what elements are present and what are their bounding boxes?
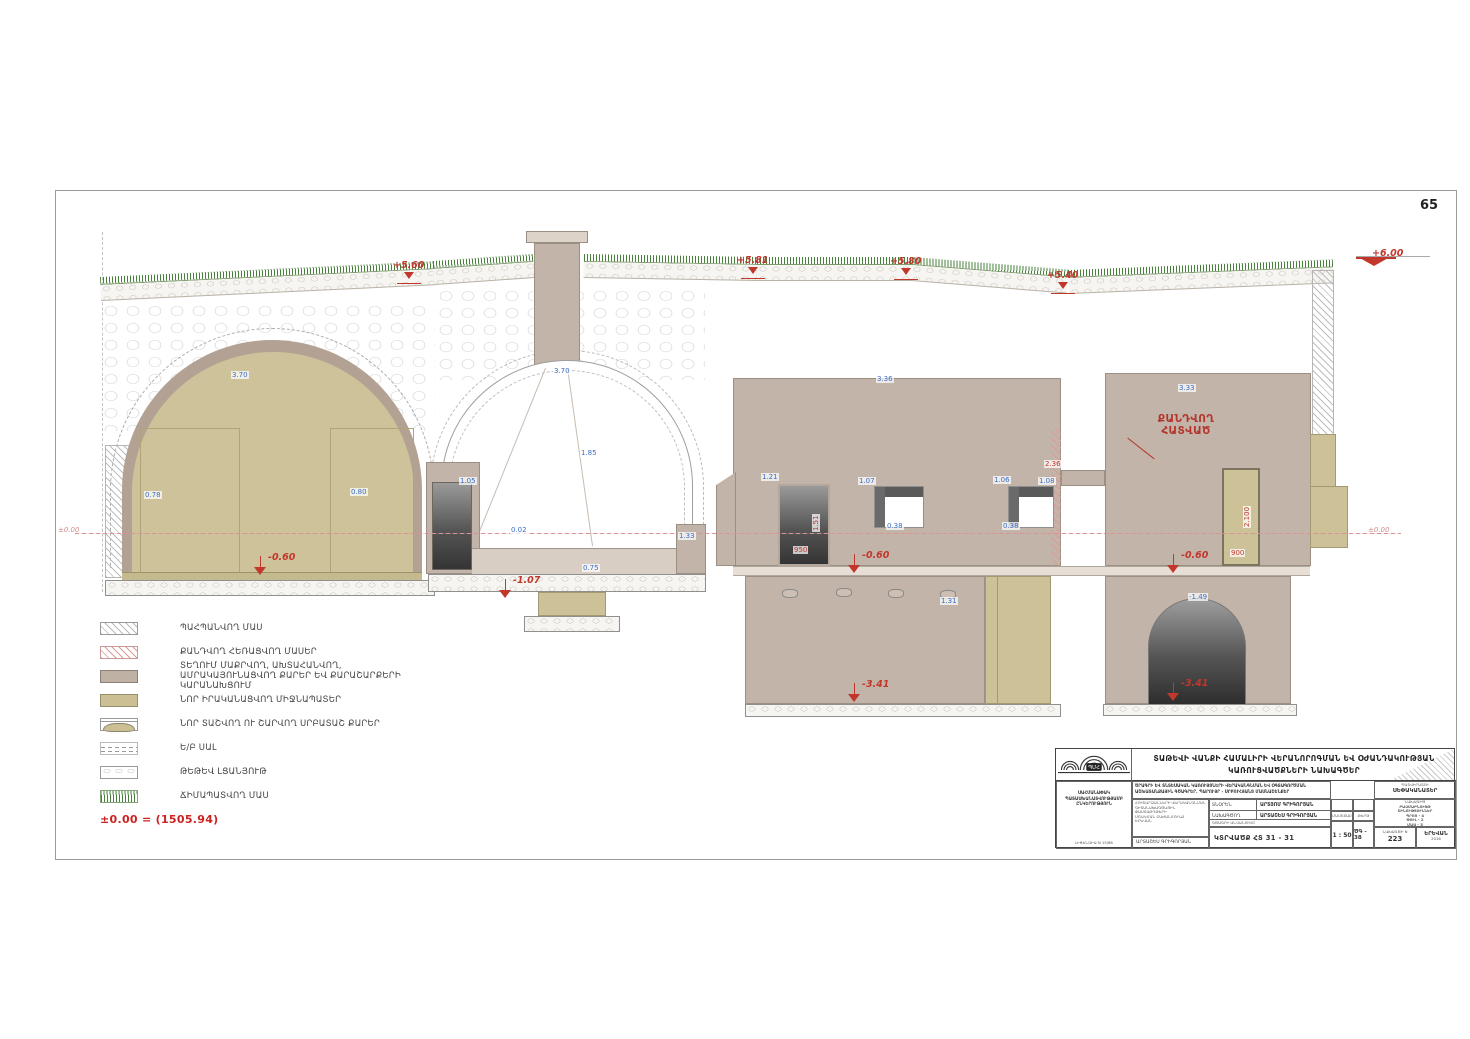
dimension-label: 0.75 bbox=[582, 564, 600, 572]
elevation-marker: +6.00 bbox=[1372, 241, 1403, 260]
signature-role: ՆԱԽԱԳԾՈՂ bbox=[1210, 811, 1257, 819]
department-lines: ՀՈՒՇԱՐՁԱՆՆԵՐԻ ՎԵՐԱԿԱՆԳՆՄԱՆԳԻՏԱՆԱԽԱԳԾԱՅԻՆ… bbox=[1135, 801, 1206, 824]
elevation-marker: +5.80 bbox=[890, 249, 921, 280]
title-block: ՊՄՀ ՏԱԹԵՎԻ ՎԱՆՔԻ ՀԱՄԱԼԻՐԻ ՎԵՐԱՆՈՐՈԳՄԱՆ Ե… bbox=[1055, 748, 1455, 848]
roof-band-segment bbox=[433, 254, 534, 285]
elevation-value: -3.41 bbox=[1181, 678, 1208, 689]
dimension-label: 0.02 bbox=[510, 526, 528, 534]
legend: ՊԱՀՊԱՆՎՈՂ ՄԱՍՔԱՆԴՎՈՂ ՀԵՌԱՑՎՈՂ ՄԱՍԵՐՏԵՂՈՒ… bbox=[100, 616, 430, 808]
legend-row: Ե/Բ ՍԱԼ bbox=[100, 736, 430, 760]
project-cell: ՆԱԽԱԳԻԾ ԲԱԶՄԱԲՆՈՒՅԹՇԻՆՈՒԹՅՈՒՆՆԵՐՊՐՈՅ - 4… bbox=[1374, 799, 1456, 827]
middle-foundation bbox=[428, 574, 706, 592]
level-symbol bbox=[738, 267, 768, 279]
signature-role: ՏՆՕՐԵՆ bbox=[1210, 800, 1257, 810]
elevation-value: +5.60 bbox=[393, 260, 424, 271]
scale-spacer bbox=[1331, 799, 1353, 811]
window-shadow-side bbox=[1009, 487, 1019, 527]
elevation-marker: -3.41 bbox=[862, 672, 889, 691]
scale-value-cell: 1 : 50 bbox=[1331, 821, 1353, 849]
stone-layer bbox=[584, 262, 758, 281]
dimension-label: 1.85 bbox=[580, 449, 598, 457]
level-arrow-head bbox=[1167, 693, 1179, 707]
dimension-label: 3.33 bbox=[1178, 384, 1196, 392]
sheet-label: ԹԵՐԹ bbox=[1358, 814, 1370, 819]
embedded-stone bbox=[836, 588, 852, 597]
sheet-spacer bbox=[1353, 799, 1374, 811]
organization-logo: ՊՄՀ bbox=[1058, 751, 1130, 777]
level-symbol bbox=[394, 272, 424, 284]
text-line: ԵՐԵՎԱՆ bbox=[1135, 819, 1206, 824]
right-foundation-right bbox=[1103, 704, 1297, 716]
roof-band-segment bbox=[100, 261, 435, 301]
right-foundation-left bbox=[745, 704, 1061, 717]
datum-line bbox=[75, 533, 1401, 534]
legend-row: ՆՈՐ ԻՐԱԿԱՆԱՑՎՈՂ ՄԻՋՆԱՊԱՏԵՐ bbox=[100, 688, 430, 712]
scale-value: 1 : 50 bbox=[1332, 832, 1351, 839]
dimension-label: 1.08 bbox=[1038, 477, 1056, 485]
scale-label-cell: ՄԱՍՇՏԱԲ bbox=[1331, 811, 1353, 821]
embedded-stone bbox=[782, 589, 798, 598]
elevation-marker: -0.60 bbox=[862, 543, 889, 562]
signature-row: ՆԱԽԱԳԾՈՂԱՐՏԱՇԵՍ ԳՐԻԳՈՐՅԱՆ bbox=[1210, 811, 1330, 819]
elevation-value: -0.60 bbox=[1181, 550, 1208, 561]
elevation-marker: +5.40 bbox=[1047, 263, 1078, 294]
chimney-cap bbox=[526, 231, 588, 243]
level-arrow-head bbox=[1167, 565, 1179, 579]
datum-underline bbox=[1356, 257, 1396, 259]
demolition-note: ՔԱՆԴՎՈՂ ՀԱՏՎԱԾ bbox=[1146, 413, 1226, 437]
level-symbol bbox=[891, 268, 921, 280]
dimension-label: 2.100 bbox=[1243, 506, 1251, 528]
author-cell: ԱՐՏԱՇԵՍ ԳՐԻԳՈՐՅԱՆ bbox=[1132, 837, 1209, 849]
legend-row: ՆՈՐ ՏԱՇՎՈՂ ՈՒ ՇԱՐՎՈՂ ՍՐԲԱՏԱՇ ՔԱՐԵՐ bbox=[100, 712, 430, 736]
level-symbol bbox=[1048, 282, 1078, 294]
scale-label: ՄԱՍՇՏԱԲ bbox=[1332, 814, 1352, 819]
license-number: ԼԻՑԵՆԶԻԱ N 15/68 bbox=[1057, 841, 1131, 846]
signature-rows: ՏՆՕՐԵՆԱՐՏՅՈՄ ԳՐԻԳՈՐՅԱՆՆԱԽԱԳԾՈՂԱՐՏԱՇԵՍ ԳՐ… bbox=[1209, 799, 1331, 819]
dimension-label: 1.31 bbox=[940, 597, 958, 605]
roof-band-segment bbox=[910, 257, 1068, 294]
elevation-value: -1.07 bbox=[513, 575, 540, 586]
new-partition-lower bbox=[985, 576, 1051, 704]
project-description-line1: ԾՐԱԳՐԻ ԵՎ ՏՆՏԵՍԱԿԱՆ ԿԱՌՈՒՅՑՆԵՐԻ ՎԵՐԱԿԱՆԳ… bbox=[1135, 783, 1328, 789]
signature-row: ՏՆՕՐԵՆԱՐՏՅՈՄ ԳՐԻԳՈՐՅԱՆ bbox=[1210, 800, 1330, 811]
dimension-label: 2.36 bbox=[1044, 460, 1062, 468]
dimension-label: 900 bbox=[1230, 549, 1245, 557]
partition-inner-line bbox=[997, 577, 998, 703]
datum-label-right: ±0.00 bbox=[1368, 526, 1389, 534]
signature-name: ԱՐՏԱՇԵՍ ԳՐԻԳՈՐՅԱՆ bbox=[1257, 811, 1330, 819]
dimension-label: 3.70 bbox=[231, 371, 249, 379]
middle-foundation-step bbox=[538, 592, 606, 616]
elevation-value: +5.80 bbox=[890, 256, 921, 267]
dimension-label: 950 bbox=[793, 546, 808, 554]
author-name: ԱՐՏԱՇԵՍ ԳՐԻԳՈՐՅԱՆ bbox=[1136, 840, 1191, 846]
left-vault-door-right bbox=[330, 428, 414, 574]
datum-label-left: ±0.00 bbox=[58, 526, 79, 534]
legend-row: ՊԱՀՊԱՆՎՈՂ ՄԱՍ bbox=[100, 616, 430, 640]
project-number: 223 bbox=[1375, 835, 1415, 843]
legend-label: ՆՈՐ ՏԱՇՎՈՂ ՈՒ ՇԱՐՎՈՂ ՍՐԲԱՏԱՇ ՔԱՐԵՐ bbox=[180, 719, 380, 729]
right-upper-wall-right bbox=[1105, 373, 1311, 566]
drawing-name-label-cell: ԳԾԱԳՐԻ ԱՆՎԱՆՈՒՄԸ bbox=[1209, 819, 1331, 827]
project-number-cell: ՆԱԽԱԳԾԻ N 223 bbox=[1374, 827, 1416, 849]
legend-row: ՏԵՂՈՒՄ ՄԱՔՐՎՈՂ, ԱԽՏԱՀԱՆՎՈՂ, ԱՄՐԱԿԱՅՈՒՆԱՑ… bbox=[100, 664, 430, 688]
elevation-marker: +5.60 bbox=[393, 253, 424, 284]
elevation-value: +5.40 bbox=[1047, 270, 1078, 281]
embedded-stone bbox=[888, 589, 904, 598]
svg-text:ՊՄՀ: ՊՄՀ bbox=[1088, 765, 1100, 771]
level-bar bbox=[741, 278, 765, 279]
floor-slab-right bbox=[733, 566, 1310, 576]
dimension-label: 1.07 bbox=[858, 477, 876, 485]
organization-name: ՍԱՀՄԱՆԱՓԱԿՊԱՏԱՍԽԱՆԱՏՎՈՒԹՅԱՄԲԸՆԿԵՐՈՒԹՅՈՒՆ bbox=[1057, 790, 1131, 807]
level-bar bbox=[1051, 293, 1075, 294]
demolition-note-line2: ՀԱՏՎԱԾ bbox=[1146, 425, 1226, 437]
window-shadow-side bbox=[875, 487, 885, 527]
legend-label: ՆՈՐ ԻՐԱԿԱՆԱՑՎՈՂ ՄԻՋՆԱՊԱՏԵՐ bbox=[180, 695, 341, 705]
legend-label: ԹԵԹԵՎ ԼՑԱՆՅՈՒԹ bbox=[180, 767, 267, 777]
text-line: ԸՆԿԵՐՈՒԹՅՈՒՆ bbox=[1057, 801, 1131, 807]
signature-name: ԱՐՏՅՈՄ ԳՐԻԳՈՐՅԱՆ bbox=[1257, 800, 1330, 810]
legend-label: ՊԱՀՊԱՆՎՈՂ ՄԱՍ bbox=[180, 623, 263, 633]
sheet-value: ԾԳ - 38 bbox=[1354, 829, 1373, 841]
left-vault-door-left bbox=[140, 428, 240, 574]
khaki-step-upper bbox=[1310, 434, 1336, 488]
project-lines: ԲԱԶՄԱԲՆՈՒՅԹՇԻՆՈՒԹՅՈՒՆՆԵՐՊՐՈՅ - 4ՓՈՒԼ - 2… bbox=[1375, 805, 1455, 827]
legend-swatch-solid-taupe bbox=[100, 670, 138, 683]
level-arrow-head bbox=[499, 590, 511, 604]
khaki-step-lower bbox=[1310, 486, 1348, 548]
legend-swatch-hatch-gray bbox=[100, 622, 138, 635]
legend-label: Ե/Բ ՍԱԼ bbox=[180, 743, 217, 753]
title-block-header: ՏԱԹԵՎԻ ՎԱՆՔԻ ՀԱՄԱԼԻՐԻ ՎԵՐԱՆՈՐՈԳՄԱՆ ԵՎ ՕԺ… bbox=[1132, 749, 1456, 781]
middle-doorway bbox=[432, 482, 472, 570]
level-bar bbox=[397, 283, 421, 284]
level-arrow-head bbox=[848, 565, 860, 579]
dimension-label: 0.38 bbox=[886, 522, 904, 530]
elevation-marker: -0.60 bbox=[268, 545, 295, 564]
dimension-label: 1.51 bbox=[812, 514, 820, 532]
drawing-name: ԿՏՐՎԱԾՔ ՀՏ 31 - 31 bbox=[1214, 834, 1294, 842]
elevation-marker: -3.41 bbox=[1181, 671, 1208, 690]
legend-swatch-stone bbox=[100, 718, 138, 731]
datum-base-note: ±0.00 = (1505.94) bbox=[100, 813, 219, 826]
wall-connector-beam bbox=[1061, 470, 1105, 486]
middle-foundation-footing bbox=[524, 616, 620, 632]
dimension-label: 3.70 bbox=[553, 367, 571, 375]
owner-value: ՍԵՓԱԿԱՆԱՏԵՐ bbox=[1375, 788, 1455, 794]
drawing-name-cell: ԿՏՐՎԱԾՔ ՀՏ 31 - 31 bbox=[1209, 827, 1331, 849]
owner-cell: ՊԱՏՎԻՐԱՏՈՒ ՍԵՓԱԿԱՆԱՏԵՐ bbox=[1374, 781, 1456, 799]
elevation-value: +5.81 bbox=[737, 255, 768, 266]
left-vault-foundation bbox=[105, 580, 435, 596]
logo-cell: ՊՄՀ bbox=[1056, 749, 1132, 781]
dimension-label: 1.05 bbox=[459, 477, 477, 485]
dimension-label: 0.80 bbox=[350, 488, 368, 496]
legend-swatch-hatch-red bbox=[100, 646, 138, 659]
elevation-marker: -0.60 bbox=[1181, 543, 1208, 562]
middle-floor-slab bbox=[472, 548, 676, 574]
right-wall-step bbox=[716, 472, 736, 566]
legend-label: ՏԵՂՈՒՄ ՄԱՔՐՎՈՂ, ԱԽՏԱՀԱՆՎՈՂ, ԱՄՐԱԿԱՅՈՒՆԱՑ… bbox=[180, 661, 430, 692]
project-description-line2: ԱՇԽԱՏԱՆՔԱՅԻՆ ԳԾԱԳՐԵՐ. ՊԱՐՈՒՅՐ - ՍՐԲՈՒՀՅԱ… bbox=[1135, 789, 1328, 795]
department-cell: ՀՈՒՇԱՐՁԱՆՆԵՐԻ ՎԵՐԱԿԱՆԳՆՄԱՆԳԻՏԱՆԱԽԱԳԾԱՅԻՆ… bbox=[1132, 799, 1209, 837]
drawing-name-label: ԳԾԱԳՐԻ ԱՆՎԱՆՈՒՄԸ bbox=[1212, 821, 1255, 826]
legend-label: ՃԻՄԱՊԱՏՎՈՂ ՄԱՍ bbox=[180, 791, 269, 801]
sheet-value-cell: ԾԳ - 38 bbox=[1353, 821, 1374, 849]
level-arrow-head bbox=[254, 567, 266, 581]
dimension-label: 3.36 bbox=[876, 375, 894, 383]
legend-label: ՔԱՆԴՎՈՂ ՀԵՌԱՑՎՈՂ ՄԱՍԵՐ bbox=[180, 647, 317, 657]
dimension-label: -1.49 bbox=[1188, 593, 1208, 601]
year: 2016 bbox=[1417, 837, 1455, 842]
dimension-label: 0.78 bbox=[144, 491, 162, 499]
section-drawing: ±0.00 ±0.00 ՔԱՆԴՎՈՂ ՀԱՏՎԱԾ +5.60+5.81+5.… bbox=[0, 0, 1470, 1039]
legend-swatch-grass bbox=[100, 790, 138, 803]
elevation-marker: +5.81 bbox=[737, 248, 768, 279]
demolition-note-line1: ՔԱՆԴՎՈՂ bbox=[1146, 413, 1226, 425]
organization-cell: ՍԱՀՄԱՆԱՓԱԿՊԱՏԱՍԽԱՆԱՏՎՈՒԹՅԱՄԲԸՆԿԵՐՈՒԹՅՈՒՆ… bbox=[1056, 781, 1132, 849]
project-description-cell: ԾՐԱԳՐԻ ԵՎ ՏՆՏԵՍԱԿԱՆ ԿԱՌՈՒՅՑՆԵՐԻ ՎԵՐԱԿԱՆԳ… bbox=[1132, 781, 1331, 799]
legend-row: ՃԻՄԱՊԱՏՎՈՂ ՄԱՍ bbox=[100, 784, 430, 808]
left-vault-floor bbox=[122, 572, 422, 580]
city-cell: ԵՐԵՎԱՆ 2016 bbox=[1416, 827, 1456, 849]
legend-row: ԹԵԹԵՎ ԼՑԱՆՅՈՒԹ bbox=[100, 760, 430, 784]
elevation-value: -0.60 bbox=[862, 550, 889, 561]
legend-swatch-dashed bbox=[100, 742, 138, 755]
elevation-value: -0.60 bbox=[268, 552, 295, 563]
roof-band-segment bbox=[1068, 259, 1334, 294]
legend-swatch-solid-khaki bbox=[100, 694, 138, 707]
project-title-line1: ՏԱԹԵՎԻ ՎԱՆՔԻ ՀԱՄԱԼԻՐԻ ՎԵՐԱՆՈՐՈԳՄԱՆ ԵՎ ՕԺ… bbox=[1132, 753, 1456, 764]
roof-band-segment bbox=[584, 254, 758, 281]
legend-swatch-rubble bbox=[100, 766, 138, 779]
dimension-label: 1.21 bbox=[761, 473, 779, 481]
level-arrow-head bbox=[848, 694, 860, 708]
level-bar bbox=[894, 279, 918, 280]
dimension-label: 1.06 bbox=[993, 476, 1011, 484]
dimension-label: 0.38 bbox=[1002, 522, 1020, 530]
dimension-label: 1.33 bbox=[678, 532, 696, 540]
sheet-label-cell: ԹԵՐԹ bbox=[1353, 811, 1374, 821]
project-title-line2: ԿԱՌՈՒՑՎԱԾՔՆԵՐԻ ՆԱԽԱԳԾԵՐ bbox=[1132, 765, 1456, 776]
roof-cut-strip-right bbox=[1312, 270, 1334, 436]
drawing-sheet: 65 bbox=[0, 0, 1470, 1039]
elevation-value: -3.41 bbox=[862, 679, 889, 690]
elevation-marker: -1.07 bbox=[513, 568, 540, 587]
chimney-shaft bbox=[534, 243, 580, 369]
